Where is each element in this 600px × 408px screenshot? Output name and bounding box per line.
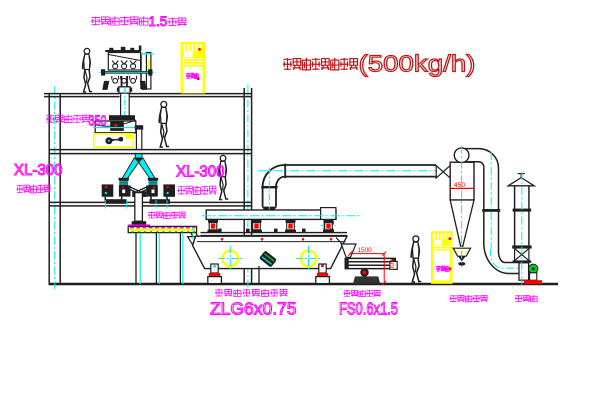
- svg-text:XL-300: XL-300: [14, 162, 63, 179]
- svg-text:1.5: 1.5: [149, 14, 168, 29]
- svg-text:350: 350: [89, 113, 107, 130]
- svg-text:1500: 1500: [358, 247, 373, 254]
- svg-text:XL-300: XL-300: [176, 163, 225, 180]
- svg-text:FS0.6x1.5: FS0.6x1.5: [339, 299, 398, 319]
- svg-text:500: 500: [388, 260, 395, 271]
- svg-text:(500kg/h): (500kg/h): [359, 51, 476, 77]
- svg-text:ZLG6x0.75: ZLG6x0.75: [210, 299, 297, 319]
